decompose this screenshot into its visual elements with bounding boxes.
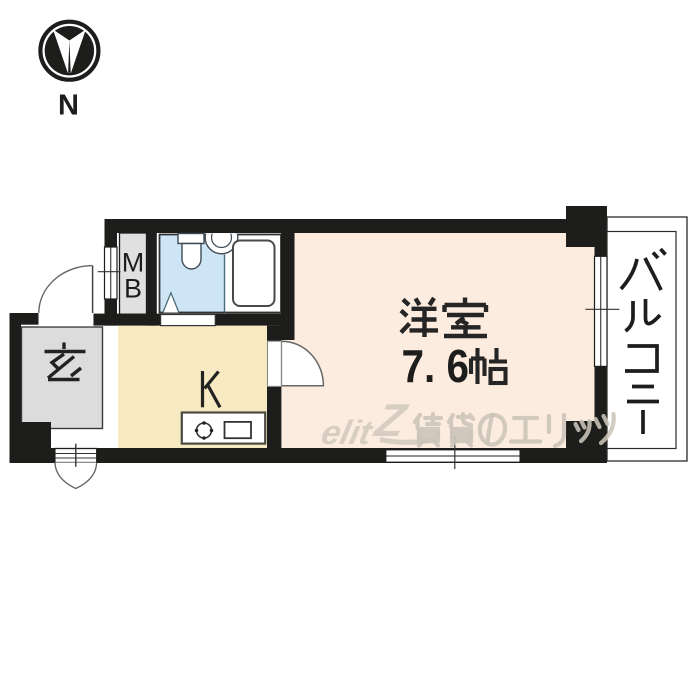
svg-text:7.: 7. (402, 341, 436, 392)
svg-text:N: N (58, 90, 79, 122)
svg-text:6: 6 (447, 341, 470, 392)
svg-text:B: B (124, 274, 142, 304)
svg-text:elit: elit (318, 414, 377, 452)
